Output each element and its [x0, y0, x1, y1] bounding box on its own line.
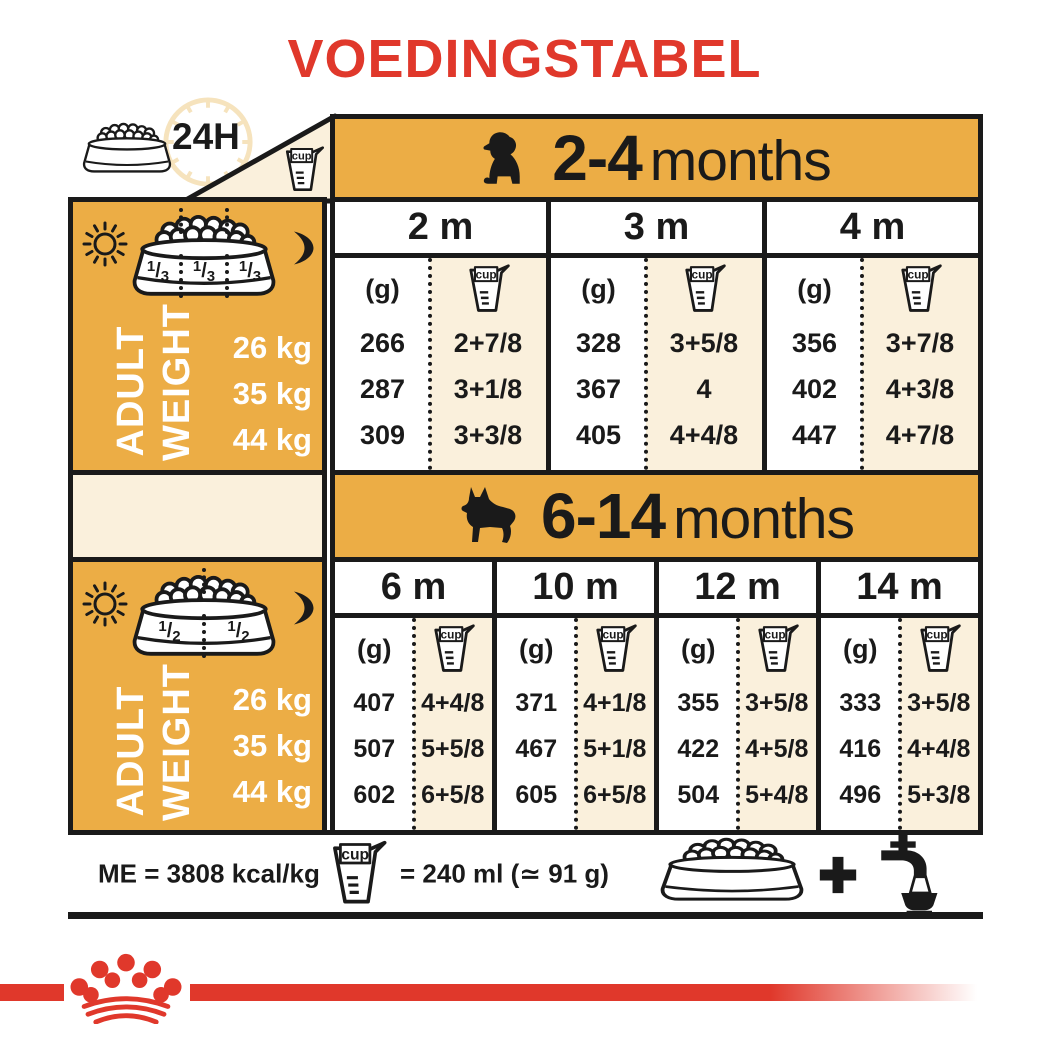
cup-equivalence-label: = 240 ml (≃ 91 g) — [400, 858, 609, 889]
grams-value: 447 — [792, 420, 837, 451]
cups-value: 4+4/8 — [670, 420, 738, 451]
adult-weight-value: 35 kg — [233, 371, 312, 417]
grams-value: 287 — [360, 374, 405, 405]
age-range-label: 2-4months — [552, 121, 830, 195]
grams-unit-label: (g) — [581, 274, 615, 305]
column-body: (g)3333+5/84164+4/84965+3/8 — [821, 618, 978, 830]
month-column: 14 m(g)3333+5/84164+4/84965+3/8 — [821, 562, 978, 830]
column-body: (g)3714+1/84675+1/86056+5/8 — [497, 618, 654, 830]
column-body: (g)3553+5/84224+5/85045+4/8 — [659, 618, 816, 830]
grams-unit-label: (g) — [357, 634, 391, 665]
age-range-label: 6-14months — [541, 479, 854, 553]
cups-value: 2+7/8 — [454, 328, 522, 359]
month-header: 4 m — [767, 202, 978, 258]
grams-unit-label: (g) — [365, 274, 399, 305]
column-body: (g)4074+4/85075+5/86026+5/8 — [335, 618, 492, 830]
spacer-block — [68, 470, 327, 562]
grams-value: 266 — [360, 328, 405, 359]
cups-value: 3+5/8 — [907, 689, 970, 718]
cup-icon — [430, 623, 475, 676]
adult-weight-value: 26 kg — [233, 325, 312, 371]
grams-value: 309 — [360, 420, 405, 451]
grams-value: 402 — [792, 374, 837, 405]
portion-divider-dotted-line — [179, 254, 183, 298]
grams-value: 407 — [353, 689, 395, 718]
grams-value: 422 — [677, 735, 719, 764]
grams-value: 496 — [839, 781, 881, 810]
grams-value: 467 — [515, 735, 557, 764]
sun-icon — [81, 220, 129, 268]
grams-unit-label: (g) — [843, 634, 877, 665]
month-header: 10 m — [497, 562, 654, 618]
adult-weight-value: 26 kg — [233, 677, 312, 723]
grams-value: 356 — [792, 328, 837, 359]
cups-value: 5+5/8 — [421, 735, 484, 764]
bowl-fraction-label: 1/3 — [193, 260, 215, 283]
cups-value: 4+4/8 — [421, 689, 484, 718]
cups-value: 3+1/8 — [454, 374, 522, 405]
food-bowl-icon — [656, 837, 808, 911]
bowl-fraction-label: 1/2 — [158, 620, 180, 643]
cups-value: 4+1/8 — [583, 689, 646, 718]
cup-icon — [592, 623, 637, 676]
month-header: 3 m — [551, 202, 762, 258]
cup-icon — [754, 623, 799, 676]
cups-value: 3+3/8 — [454, 420, 522, 451]
portion-divider-dotted-line — [225, 208, 229, 234]
portion-divider-dotted-line — [202, 614, 206, 658]
month-header: 14 m — [821, 562, 978, 618]
page-title: VOEDINGSTABEL — [0, 28, 1049, 90]
grams-value: 328 — [576, 328, 621, 359]
grams-value: 602 — [353, 781, 395, 810]
feeding-table-page: VOEDINGSTABEL 24H 2-4months 1/31/31/3 AD… — [0, 0, 1049, 1049]
age-range-bold: 2-4 — [552, 122, 642, 194]
adult-weight-value: 44 kg — [233, 769, 312, 815]
feeding-columns-2-4-months: 2 m(g)2662+7/82873+1/83093+3/83 m(g)3283… — [330, 197, 983, 475]
cups-value: 3+5/8 — [745, 689, 808, 718]
age-range-bold: 6-14 — [541, 480, 665, 552]
cups-value: 5+1/8 — [583, 735, 646, 764]
portion-divider-dotted-line — [179, 208, 183, 234]
cups-value: 4+7/8 — [886, 420, 954, 451]
metabolizable-energy-label: ME = 3808 kcal/kg — [98, 858, 320, 889]
portion-divider-dotted-line — [202, 568, 206, 594]
bowl-fraction-label: 1/3 — [147, 260, 169, 283]
grams-value: 355 — [677, 689, 719, 718]
age-band-6-14-months: 6-14months — [330, 470, 983, 562]
month-header: 12 m — [659, 562, 816, 618]
month-header: 2 m — [335, 202, 546, 258]
cups-value: 6+5/8 — [421, 781, 484, 810]
month-column: 3 m(g)3283+5/836744054+4/8 — [551, 202, 762, 470]
cup-icon — [465, 263, 510, 316]
cups-value: 4 — [696, 374, 711, 405]
column-body: (g)2662+7/82873+1/83093+3/8 — [335, 258, 546, 470]
sun-icon — [81, 580, 129, 628]
plus-icon — [818, 855, 858, 895]
adult-weight-value: 44 kg — [233, 417, 312, 463]
month-column: 10 m(g)3714+1/84675+1/86056+5/8 — [497, 562, 654, 830]
grams-unit-label: (g) — [519, 634, 553, 665]
cups-value: 4+4/8 — [907, 735, 970, 764]
adult-weight-panel-1: 1/31/31/3 ADULT WEIGHT 26 kg35 kg44 kg — [68, 197, 327, 475]
grams-value: 416 — [839, 735, 881, 764]
cup-icon — [897, 263, 942, 316]
column-body: (g)3563+7/84024+3/84474+7/8 — [767, 258, 978, 470]
german-shepherd-icon — [459, 485, 517, 547]
brand-stripe-right — [190, 984, 985, 1001]
cups-value: 3+5/8 — [670, 328, 738, 359]
cups-value: 6+5/8 — [583, 781, 646, 810]
grams-value: 605 — [515, 781, 557, 810]
cup-icon — [916, 623, 961, 676]
age-range-unit: months — [673, 487, 854, 551]
water-tap-icon — [866, 835, 940, 913]
feeding-columns-6-14-months: 6 m(g)4074+4/85075+5/86026+5/810 m(g)371… — [330, 557, 983, 835]
cup-icon — [326, 839, 388, 909]
month-column: 12 m(g)3553+5/84224+5/85045+4/8 — [659, 562, 816, 830]
weight-rows: 26 kg35 kg44 kg — [233, 615, 312, 815]
weight-rows: 26 kg35 kg44 kg — [233, 263, 312, 463]
grams-unit-label: (g) — [681, 634, 715, 665]
grams-value: 333 — [839, 689, 881, 718]
grams-value: 371 — [515, 689, 557, 718]
month-header: 6 m — [335, 562, 492, 618]
cups-value: 4+5/8 — [745, 735, 808, 764]
adult-weight-label: ADULT WEIGHT — [105, 681, 203, 821]
month-column: 6 m(g)4074+4/85075+5/86026+5/8 — [335, 562, 492, 830]
weight-label: WEIGHT — [154, 681, 200, 821]
age-range-unit: months — [650, 129, 831, 193]
adult-weight-value: 35 kg — [233, 723, 312, 769]
cup-icon — [282, 145, 324, 195]
brand-stripe-left — [0, 984, 64, 1001]
grams-value: 507 — [353, 735, 395, 764]
cups-value: 4+3/8 — [886, 374, 954, 405]
adult-weight-label: ADULT WEIGHT — [105, 321, 203, 461]
month-column: 4 m(g)3563+7/84024+3/84474+7/8 — [767, 202, 978, 470]
adult-weight-panel-2: 1/21/2 ADULT WEIGHT 26 kg35 kg44 kg — [68, 557, 327, 835]
grams-value: 504 — [677, 781, 719, 810]
cups-value: 3+7/8 — [886, 328, 954, 359]
column-body: (g)3283+5/836744054+4/8 — [551, 258, 762, 470]
adult-label: ADULT — [108, 681, 154, 821]
cups-value: 5+4/8 — [745, 781, 808, 810]
age-band-2-4-months: 2-4months — [330, 114, 983, 202]
grams-unit-label: (g) — [797, 274, 831, 305]
cups-value: 5+3/8 — [907, 781, 970, 810]
royal-canin-crown-logo — [58, 950, 194, 1024]
month-column: 2 m(g)2662+7/82873+1/83093+3/8 — [335, 202, 546, 470]
portion-divider-dotted-line — [225, 254, 229, 298]
puppy-icon — [482, 130, 528, 186]
grams-value: 405 — [576, 420, 621, 451]
footer-strip: ME = 3808 kcal/kg = 240 ml (≃ 91 g) — [68, 830, 983, 919]
cup-icon — [681, 263, 726, 316]
weight-label: WEIGHT — [154, 321, 200, 461]
adult-label: ADULT — [108, 321, 154, 461]
food-bowl-icon — [80, 122, 174, 181]
grams-value: 367 — [576, 374, 621, 405]
